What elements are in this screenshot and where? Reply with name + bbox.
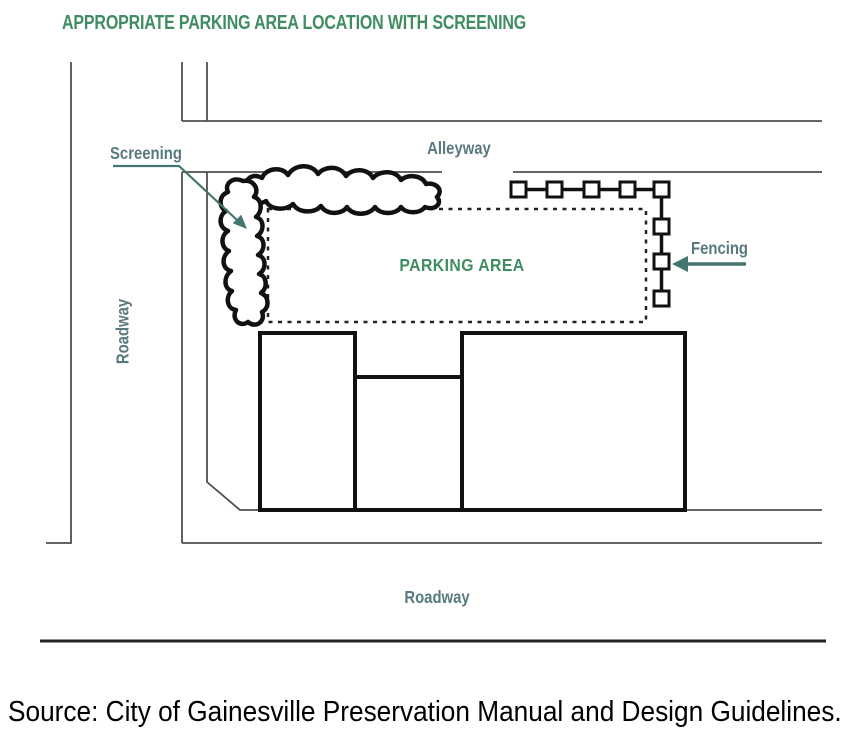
screening-shrubs (221, 166, 440, 324)
fence-post-corner (654, 182, 669, 197)
shrub-column-vertical (221, 179, 268, 324)
fence-post (584, 182, 599, 197)
parking-area-label: PARKING AREA (372, 255, 552, 276)
alleyway-label: Alleyway (417, 138, 502, 159)
fence-post (654, 254, 669, 269)
building-middle (355, 377, 462, 510)
fencing-arrowhead-icon (672, 256, 688, 272)
building-right (462, 333, 685, 510)
fence-post (654, 219, 669, 234)
fence-post (620, 182, 635, 197)
shrub-row-horizontal (246, 166, 440, 214)
screening-label: Screening (110, 143, 182, 164)
figure-canvas: APPROPRIATE PARKING AREA LOCATION WITH S… (0, 0, 861, 738)
fence-post (654, 291, 669, 306)
roadway-bottom-label: Roadway (395, 587, 480, 608)
building-left (260, 333, 355, 510)
fence-post (511, 182, 526, 197)
left-roadway-edge-line (46, 62, 71, 543)
fencing-label: Fencing (691, 238, 748, 259)
buildings (260, 333, 685, 510)
fence-post (547, 182, 562, 197)
roadway-left-label: Roadway (113, 289, 134, 374)
source-citation: Source: City of Gainesville Preservation… (8, 696, 842, 729)
